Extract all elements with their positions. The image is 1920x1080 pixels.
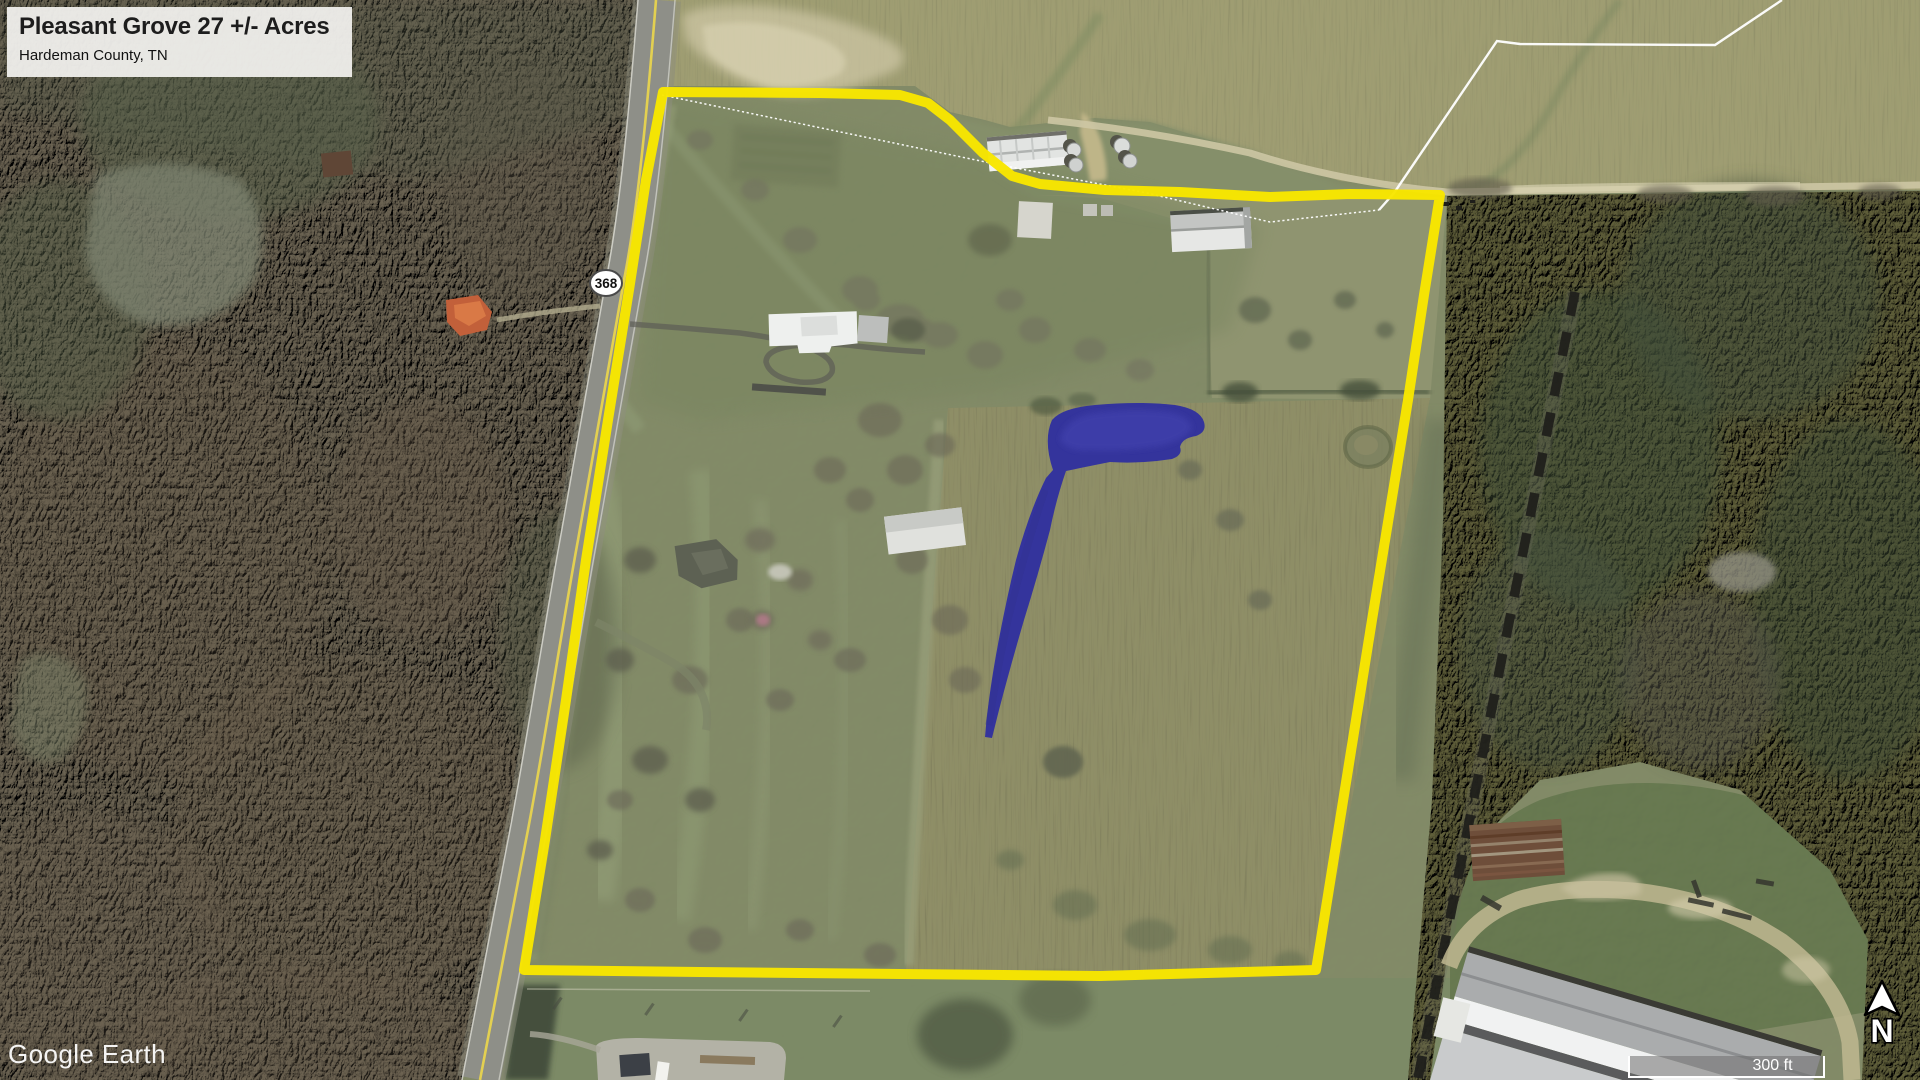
svg-text:N: N bbox=[1870, 1013, 1893, 1048]
svg-text:368: 368 bbox=[595, 276, 618, 291]
